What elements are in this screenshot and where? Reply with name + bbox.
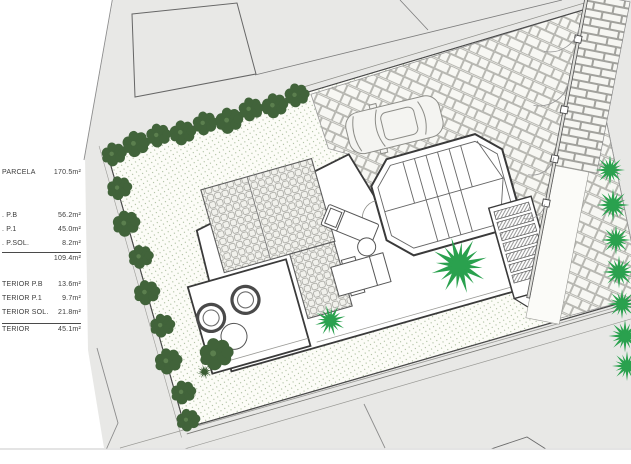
row-value: 45.0m² xyxy=(58,226,81,234)
table-row-total: 109.4m² xyxy=(2,252,81,263)
row-label: TERIOR P.1 xyxy=(2,295,42,303)
row-label: . P.1 xyxy=(2,226,17,234)
row-label: . P.B xyxy=(2,212,17,220)
row-value: 9.7m² xyxy=(62,295,81,303)
table-row: . P.SOL. 8.2m² xyxy=(2,240,81,248)
page-bottom-strip xyxy=(0,449,631,464)
table-row: TERIOR P.B 13.6m² xyxy=(2,281,81,289)
table-row: PARCELA 170.5m² xyxy=(2,169,81,177)
table-row: . P.1 45.0m² xyxy=(2,226,81,234)
row-value: 8.2m² xyxy=(62,240,81,248)
row-label: PARCELA xyxy=(2,169,36,177)
row-value: 13.6m² xyxy=(58,281,81,289)
table-row: TERIOR P.1 9.7m² xyxy=(2,295,81,303)
row-value: 21.8m² xyxy=(58,309,81,317)
row-label: TERIOR P.B xyxy=(2,281,43,289)
row-value: 170.5m² xyxy=(54,169,81,177)
row-value: 56.2m² xyxy=(58,212,81,220)
row-value: 45.1m² xyxy=(58,326,81,334)
row-label: TERIOR xyxy=(2,326,30,334)
site-plan-drawing xyxy=(0,0,631,464)
table-row: . P.B 56.2m² xyxy=(2,212,81,220)
table-row-total: TERIOR 45.1m² xyxy=(2,323,81,334)
row-value: 109.4m² xyxy=(54,255,81,263)
row-label: TERIOR SOL. xyxy=(2,309,49,317)
row-label: . P.SOL. xyxy=(2,240,29,248)
table-row: TERIOR SOL. 21.8m² xyxy=(2,309,81,317)
